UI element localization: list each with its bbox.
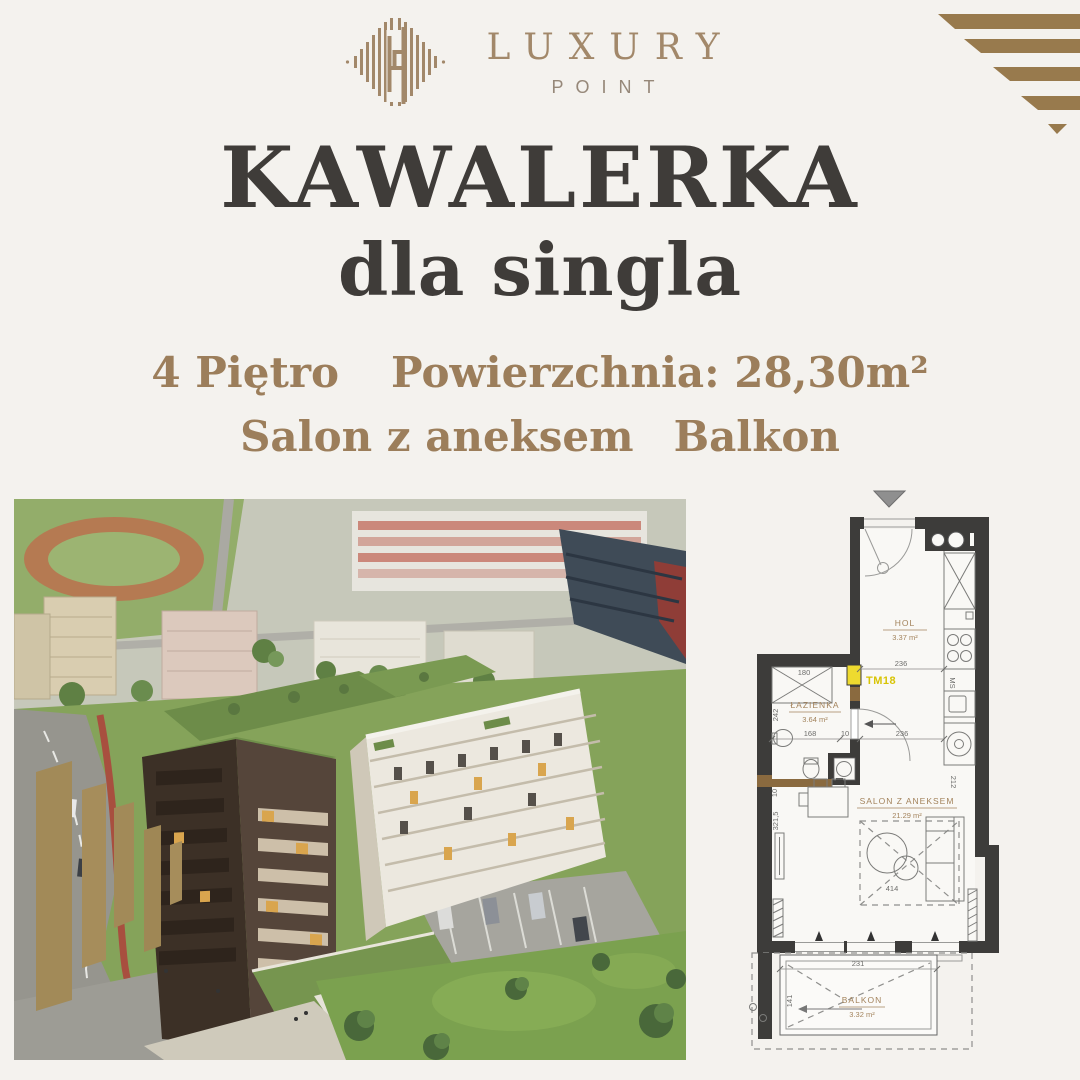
room-hol-name: HOL <box>895 618 915 628</box>
room-balcony-area: 3.32 m² <box>849 1010 875 1019</box>
spec-row-2: Salon z aneksem Balkon <box>0 416 1080 458</box>
spec-floor: 4 Piętro <box>151 352 339 394</box>
diamond-logo-icon <box>345 12 445 112</box>
dim-door: 10 <box>841 729 849 738</box>
spec-area: Powierzchnia: 28,30m² <box>391 352 929 394</box>
ad-poster: LUXURY POINT KAWALERKA dla singla 4 Pięt… <box>0 0 1080 1080</box>
dim-salon-depth: 321,5 <box>771 812 780 831</box>
dim-kitchen-note: MS <box>948 677 957 688</box>
floor-plan: 236 236 180 242 168 10 10 321,5 414 MS 2… <box>744 487 1019 1075</box>
brand-name: LUXURY <box>471 27 734 68</box>
dim-balcony-width: 231 <box>852 959 865 968</box>
room-salon-area: 21.29 m² <box>892 811 922 820</box>
unit-highlight-box <box>847 665 861 685</box>
corner-stripes-decoration <box>930 0 1080 140</box>
headline-subtitle: dla singla <box>0 234 1080 306</box>
brand-tagline: POINT <box>539 77 666 98</box>
dim-bath-width: 180 <box>798 668 811 677</box>
brand-wordmark: LUXURY POINT <box>471 27 734 98</box>
room-balcony-name: BALKON <box>842 995 883 1005</box>
spec-extra: Balkon <box>674 416 840 458</box>
room-bathroom-name: ŁAZIENKA <box>790 700 839 710</box>
room-salon-name: SALON Z ANEKSEM <box>860 796 955 806</box>
dim-hall-width: 236 <box>895 659 908 668</box>
room-hol-area: 3.37 m² <box>892 633 918 642</box>
dim-bath-depth: 242 <box>771 709 780 722</box>
entrance-arrow-icon <box>874 491 905 507</box>
dim-kitchen-width: 236 <box>896 729 909 738</box>
spec-row-1: 4 Piętro Powierzchnia: 28,30m² <box>0 352 1080 394</box>
room-bathroom-area: 3.64 m² <box>802 715 828 724</box>
gold-bars-decoration <box>14 748 199 1023</box>
floor-plan-floor <box>772 529 975 941</box>
unit-id-label: TM18 <box>866 675 896 687</box>
dim-armchair-zone: 414 <box>886 884 899 893</box>
dim-salon-side-top: 10 <box>770 789 779 797</box>
dim-bath-inner: 168 <box>804 729 817 738</box>
dim-kitchen-run: 212 <box>949 776 958 789</box>
dim-balcony-depth: 141 <box>785 995 794 1008</box>
brand-logo: LUXURY POINT <box>345 12 734 112</box>
headline-title: KAWALERKA <box>0 136 1080 220</box>
spec-layout: Salon z aneksem <box>240 416 634 458</box>
